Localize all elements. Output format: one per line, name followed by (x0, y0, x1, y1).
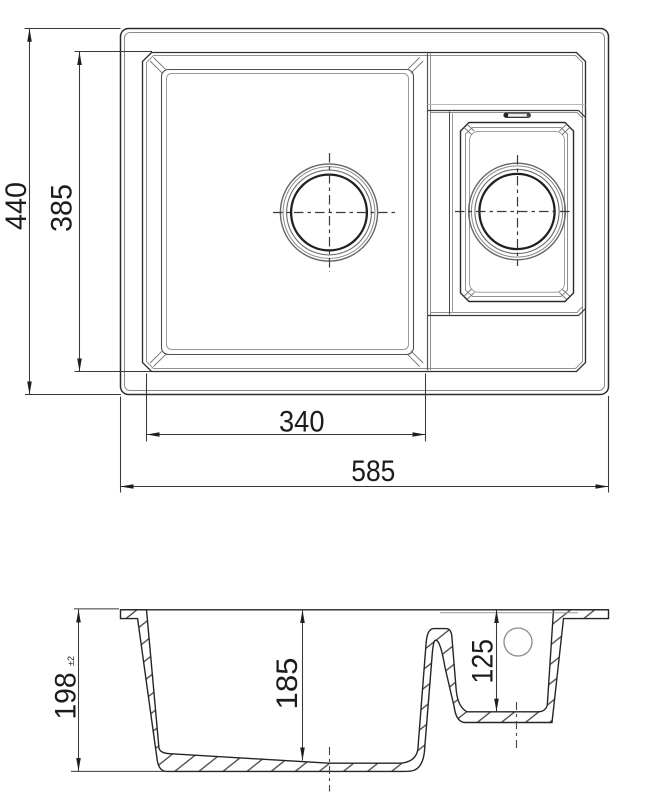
svg-text:340: 340 (279, 405, 325, 438)
svg-text:198: 198 (50, 673, 83, 720)
svg-text:440: 440 (0, 182, 33, 230)
svg-text:125: 125 (467, 639, 500, 684)
svg-text:585: 585 (351, 455, 395, 488)
svg-text:385: 385 (45, 184, 78, 232)
svg-text:185: 185 (271, 658, 304, 710)
svg-text:±2: ±2 (66, 656, 76, 666)
